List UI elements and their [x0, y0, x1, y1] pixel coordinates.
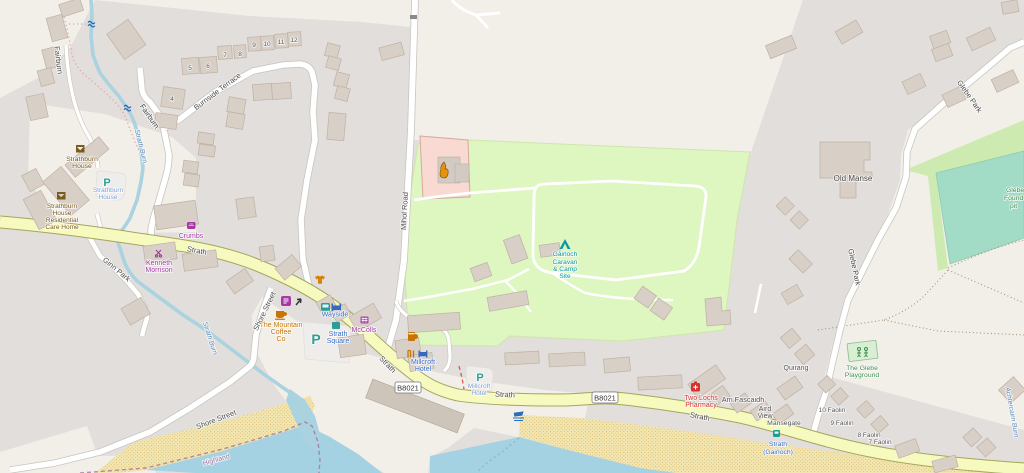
- svg-text:Square: Square: [327, 338, 350, 345]
- svg-text:Strathburn: Strathburn: [47, 203, 78, 210]
- svg-text:Quirang: Quirang: [784, 365, 809, 372]
- svg-text:B8021: B8021: [397, 384, 419, 393]
- svg-text:The Glebe: The Glebe: [846, 365, 878, 372]
- svg-text:Wayside: Wayside: [322, 312, 349, 319]
- svg-text:Residential: Residential: [46, 217, 79, 224]
- svg-text:B8021: B8021: [594, 394, 616, 403]
- svg-text:Strathburn: Strathburn: [66, 156, 98, 163]
- svg-text:Gàirloch: Gàirloch: [553, 251, 578, 258]
- svg-text:Glebe: Glebe: [1006, 187, 1024, 194]
- svg-text:View: View: [757, 413, 773, 420]
- svg-text:Two Lochs: Two Lochs: [684, 395, 718, 402]
- svg-text:7: 7: [223, 52, 227, 59]
- svg-text:10: 10: [263, 41, 271, 48]
- svg-text:House: House: [99, 194, 118, 201]
- svg-text:McColls: McColls: [352, 327, 377, 334]
- svg-text:Strath: Strath: [769, 441, 787, 448]
- svg-text:Strath: Strath: [329, 331, 348, 338]
- svg-text:(Gairloch): (Gairloch): [763, 449, 793, 456]
- svg-text:House: House: [72, 163, 92, 170]
- svg-text:The Mountain: The Mountain: [260, 322, 303, 329]
- svg-text:Site: Site: [559, 273, 571, 280]
- svg-text:Playground: Playground: [845, 372, 880, 379]
- svg-text:Caravan: Caravan: [553, 259, 578, 266]
- svg-text:Strath: Strath: [495, 389, 515, 399]
- svg-text:pit: pit: [1010, 203, 1017, 210]
- svg-text:12: 12: [290, 37, 298, 44]
- svg-text:5: 5: [188, 65, 192, 72]
- svg-text:Old Manse: Old Manse: [834, 174, 873, 183]
- svg-text:Strathburn: Strathburn: [93, 187, 124, 194]
- svg-text:Coffee: Coffee: [271, 329, 292, 336]
- svg-text:Crumbs: Crumbs: [179, 233, 204, 240]
- svg-text:6: 6: [206, 63, 210, 70]
- svg-text:Pharmacy: Pharmacy: [685, 402, 717, 409]
- svg-text:Hotel: Hotel: [415, 366, 432, 373]
- svg-text:Co: Co: [277, 336, 286, 343]
- svg-text:Found: Found: [1004, 195, 1023, 202]
- svg-text:8: 8: [238, 51, 242, 58]
- svg-text:4: 4: [170, 96, 174, 103]
- svg-text:Millcroft: Millcroft: [411, 359, 435, 366]
- svg-text:Morrison: Morrison: [145, 267, 172, 274]
- svg-text:Am Fascaidh: Am Fascaidh: [722, 395, 765, 404]
- svg-text:P: P: [311, 331, 320, 347]
- svg-text:8 Faolin: 8 Faolin: [857, 432, 881, 439]
- svg-text:Aird: Aird: [759, 406, 772, 413]
- svg-text:9 Faolin: 9 Faolin: [830, 420, 854, 427]
- svg-text:9: 9: [252, 42, 256, 49]
- svg-text:House: House: [53, 210, 72, 217]
- svg-text:10 Faolin: 10 Faolin: [819, 407, 846, 414]
- svg-text:Mansegate: Mansegate: [767, 420, 801, 427]
- svg-text:11: 11: [278, 39, 285, 46]
- svg-text:Kenneth: Kenneth: [146, 260, 172, 267]
- svg-text:7 Faolin: 7 Faolin: [868, 439, 892, 446]
- svg-text:Hotel: Hotel: [471, 390, 487, 397]
- svg-text:& Camp: & Camp: [553, 266, 577, 273]
- svg-text:Care Home: Care Home: [45, 224, 79, 231]
- svg-text:Millcroft: Millcroft: [468, 383, 491, 390]
